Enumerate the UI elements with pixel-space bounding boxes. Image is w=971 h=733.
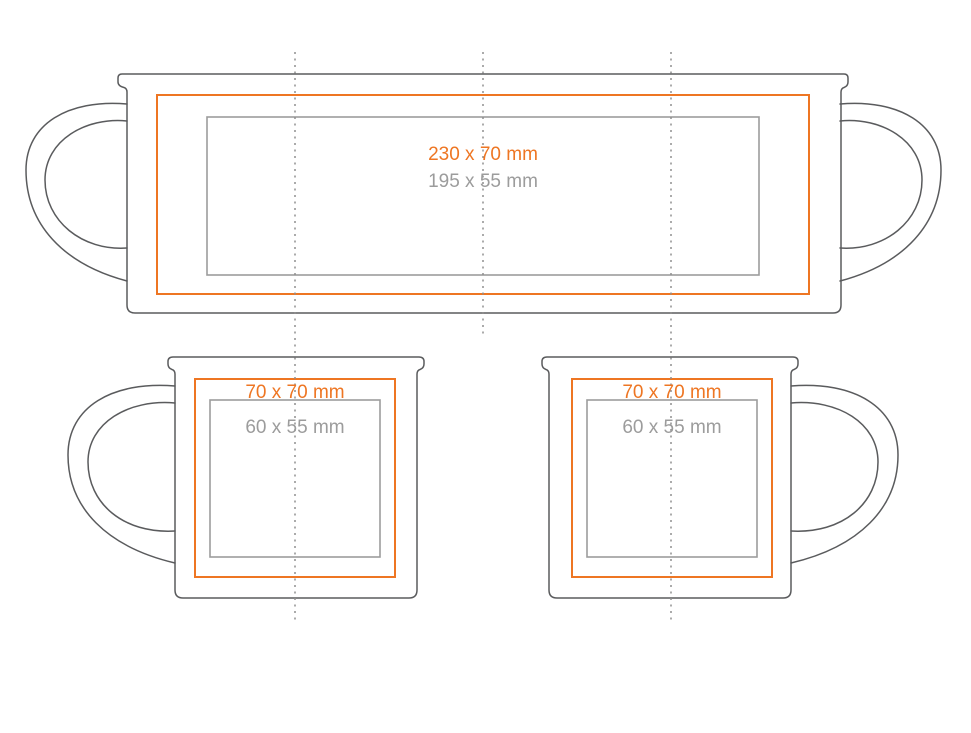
wrap-max-area-label: 230 x 70 mm	[428, 144, 538, 165]
left-mug-handle-inner-outline	[88, 403, 175, 532]
wrap-body-outline	[118, 74, 848, 313]
right-mug-max-print-area	[572, 379, 772, 577]
wrap-left-handle-inner-outline	[45, 121, 127, 249]
left-mug-safe-area-label: 60 x 55 mm	[245, 417, 344, 438]
mug-print-template-diagram: 230 x 70 mm 195 x 55 mm 70 x 70 mm 60 x …	[0, 0, 971, 733]
right-mug-safe-area-label: 60 x 55 mm	[622, 417, 721, 438]
wrap-safe-area-label: 195 x 55 mm	[428, 171, 538, 192]
wrap-view	[26, 74, 941, 313]
left-mug-max-area-label: 70 x 70 mm	[245, 382, 344, 403]
right-mug-max-area-label: 70 x 70 mm	[622, 382, 721, 403]
right-mug-handle-inner-outline	[791, 403, 878, 532]
dimension-labels: 230 x 70 mm 195 x 55 mm 70 x 70 mm 60 x …	[245, 144, 721, 438]
fold-lines	[295, 52, 671, 620]
diagram-canvas: 230 x 70 mm 195 x 55 mm 70 x 70 mm 60 x …	[0, 0, 971, 733]
wrap-right-handle-inner-outline	[840, 121, 922, 249]
